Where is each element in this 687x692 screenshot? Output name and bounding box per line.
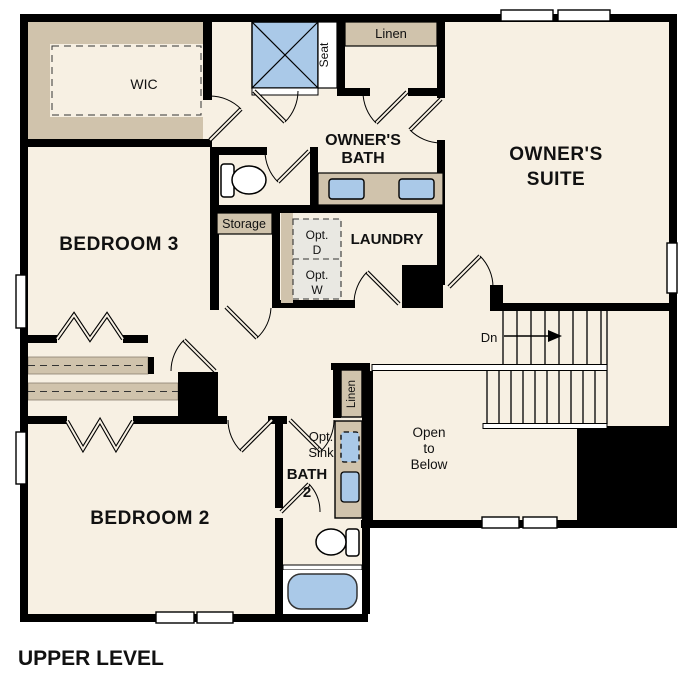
toilet-bowl [232, 166, 266, 194]
bath2-label-1: BATH [287, 466, 328, 483]
bath2-sink [341, 472, 359, 502]
closet-hall-mass [178, 372, 218, 418]
floor-plan-svg: WIC Linen Seat OWNER'S BATH OWNER'S SUIT… [0, 0, 687, 687]
opt-dryer-label-1: Opt. [306, 228, 329, 242]
toilet2-tank [346, 529, 359, 556]
open-below-label-1: Open [412, 425, 445, 440]
suite-left-wall-upper [437, 14, 445, 98]
owners-bath-vanity [318, 173, 443, 205]
hall-linen-left-wall [333, 363, 341, 418]
window-open-below-2 [523, 517, 557, 528]
wic-floor [50, 44, 203, 117]
laundry-label: LAUNDRY [351, 231, 424, 248]
bedroom2-bath2-wall-lower [275, 518, 283, 614]
window-bedroom2-bottom-1 [156, 612, 194, 623]
chase-block [402, 265, 443, 308]
bedroom2-top-wall-mid [133, 416, 227, 424]
bath-laundry-divider-wall [210, 205, 445, 213]
seat-linen-divider-wall [337, 14, 345, 96]
water-closet-right-wall [310, 147, 318, 213]
toilet2-bowl [316, 529, 346, 555]
window-suite-top-1 [501, 10, 553, 21]
linen-bottom-wall-left [337, 88, 370, 96]
storage-right-wall [272, 213, 280, 307]
wic-label: WIC [130, 76, 157, 92]
window-bedroom2-bottom-2 [197, 612, 233, 623]
optional-sink [341, 432, 359, 462]
suite-left-wall-lower [437, 140, 445, 285]
toilet-bath2 [316, 529, 359, 556]
water-closet-top-wall [219, 147, 267, 155]
vanity-sink-left [329, 179, 364, 199]
window-bedroom3-left [16, 275, 26, 328]
linen-top-label: Linen [375, 26, 407, 41]
bedroom2-label: BEDROOM 2 [90, 508, 210, 529]
opt-dryer-label-2: D [313, 243, 322, 257]
laundry-counter-strip [281, 213, 293, 303]
bath2-label-2: 2 [303, 484, 311, 501]
bedroom2-top-wall-left [20, 416, 67, 424]
bathtub [288, 574, 357, 609]
plan-title: UPPER LEVEL [18, 647, 164, 670]
suite-bottom-wall [490, 303, 677, 311]
storage-label: Storage [222, 217, 266, 231]
vanity-sink-right [399, 179, 434, 199]
seat-label: Seat [317, 42, 331, 67]
open-below-label-3: Below [411, 457, 448, 472]
linen-hall-label: Linen [346, 380, 358, 408]
upper-level-floor-plan-page: WIC Linen Seat OWNER'S BATH OWNER'S SUIT… [0, 0, 687, 687]
bedroom2-bath2-wall-upper [275, 417, 283, 508]
window-suite-top-2 [558, 10, 610, 21]
owners-bath-label-1: OWNER'S [325, 132, 401, 149]
bedroom3-closet-wall-right [123, 335, 148, 343]
window-suite-right [667, 243, 677, 293]
bathtub-area [283, 565, 362, 614]
toilet-owners [221, 164, 266, 197]
stair-railing [372, 365, 607, 371]
bedroom3-closet-wall-left [20, 335, 57, 343]
stairs-down-label: Dn [481, 330, 498, 345]
open-below-label-2: to [423, 441, 434, 456]
window-bedroom2-left [16, 432, 26, 484]
owners-suite-label-1: OWNER'S [509, 144, 603, 165]
opt-washer-label-1: Opt. [306, 268, 329, 282]
open-below-left-wall [365, 371, 373, 520]
stair-bottom-edge [483, 424, 607, 429]
bath2-vanity [335, 421, 362, 518]
tub-divider [283, 565, 362, 570]
bedroom3-label: BEDROOM 3 [59, 234, 179, 255]
opt-sink-label-1: Opt. [309, 429, 334, 444]
wic-bottom-wall [20, 139, 212, 147]
owners-bath-label-2: BATH [341, 150, 384, 167]
solid-mass-lower-right [577, 426, 677, 528]
wic-right-wall [203, 14, 212, 100]
wic-closet [28, 22, 203, 139]
shower-curb [252, 88, 318, 95]
opt-washer-label-2: W [311, 283, 323, 297]
opt-sink-label-2: Sink [308, 445, 334, 460]
owners-suite-label-2: SUITE [527, 169, 585, 190]
window-open-below-1 [482, 517, 519, 528]
shelf-end-cap [148, 357, 154, 374]
shower [252, 22, 318, 95]
